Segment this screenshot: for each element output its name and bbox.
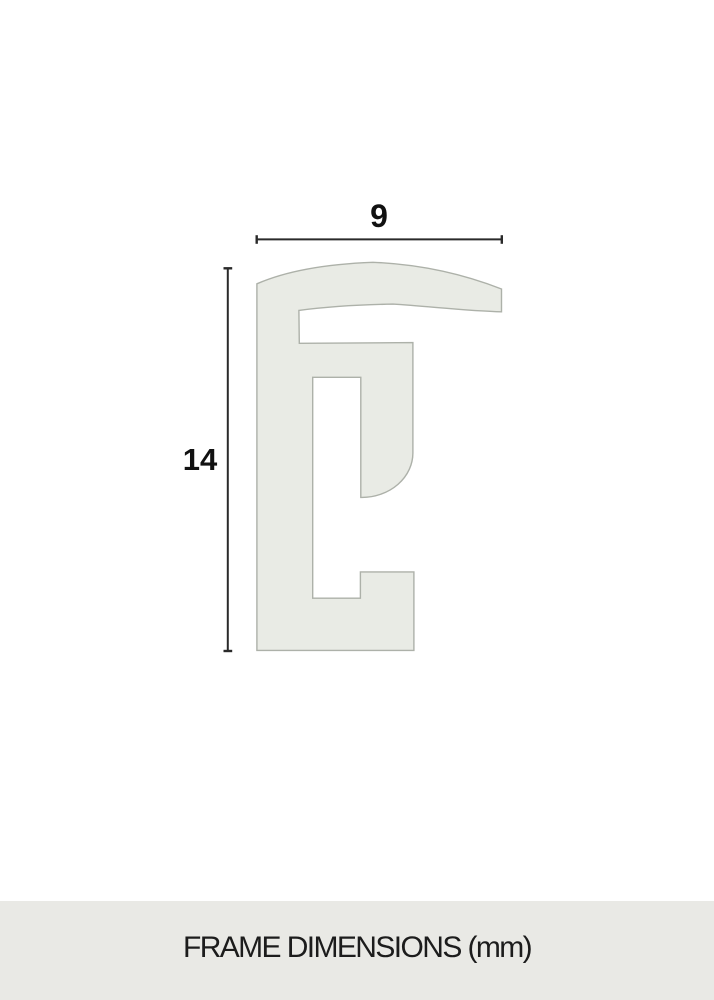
svg-text:9: 9 <box>370 198 388 234</box>
svg-text:14: 14 <box>183 442 218 477</box>
